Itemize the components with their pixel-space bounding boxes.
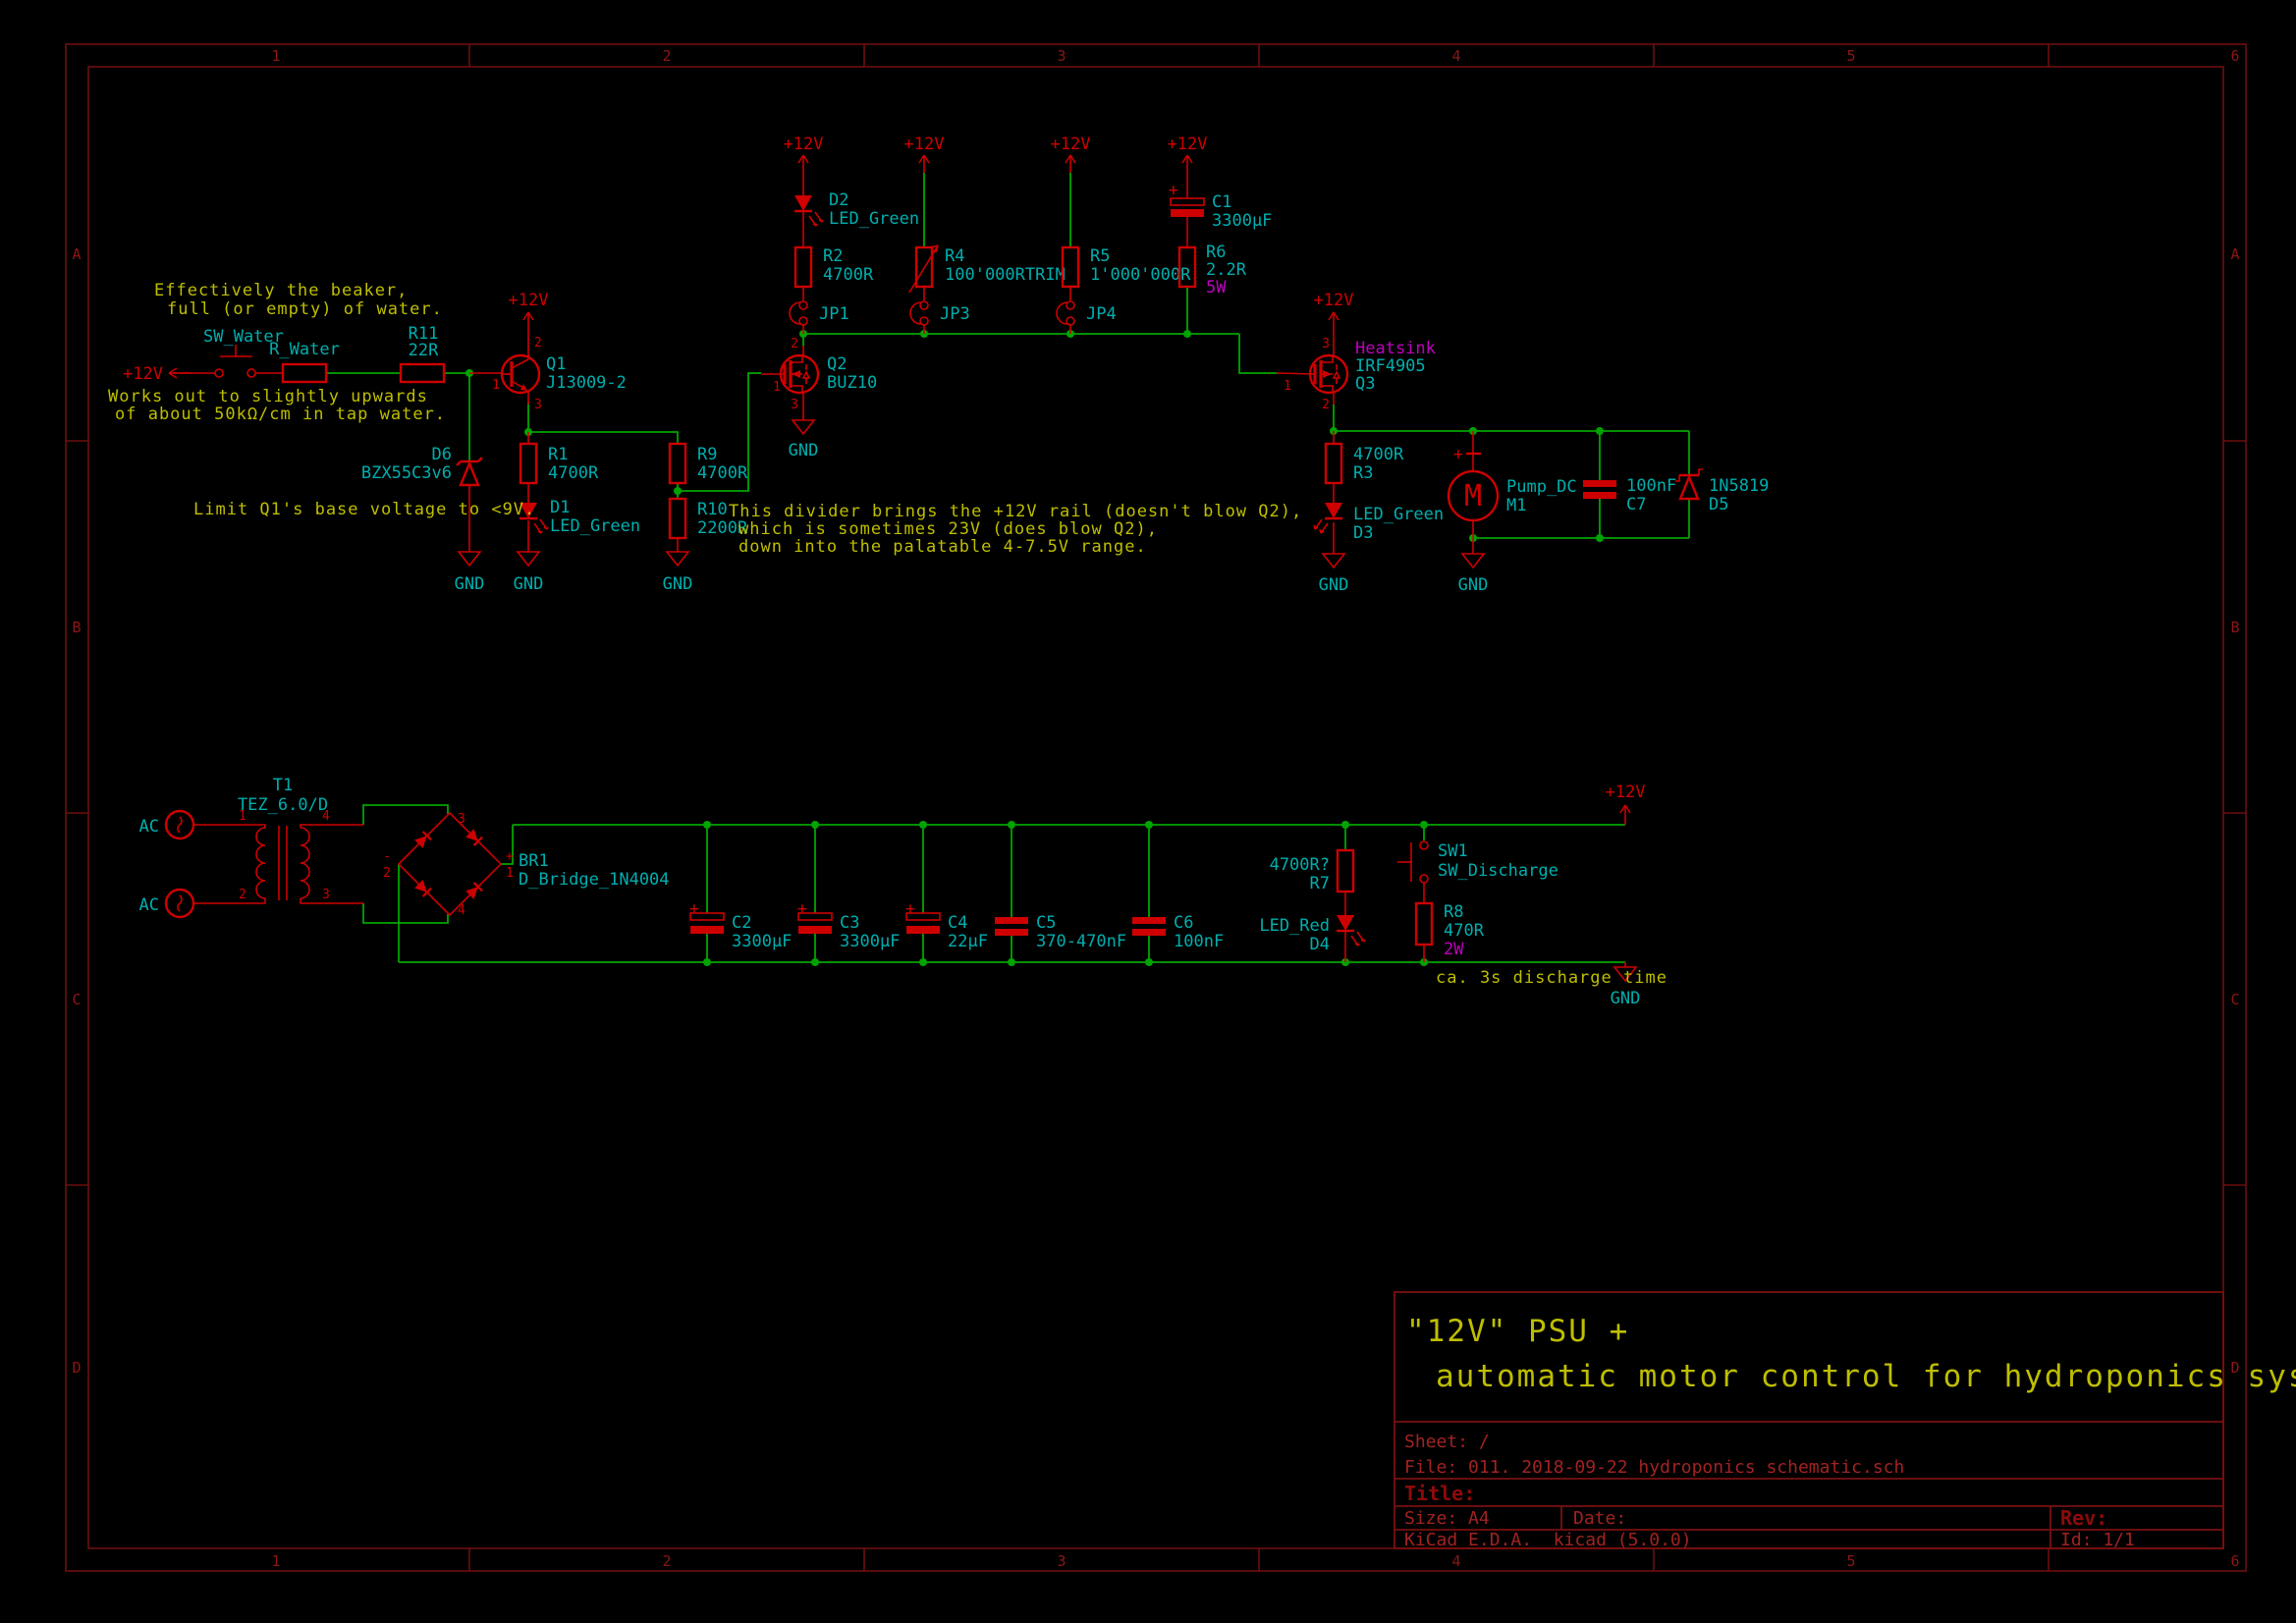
c1-plus: + — [1169, 181, 1178, 200]
comment-beaker-2: full (or empty) of water. — [167, 299, 443, 319]
border-col-3-top: 3 — [1057, 47, 1066, 65]
component-d1[interactable]: D1 LED_Green — [519, 498, 640, 536]
br1-value: D_Bridge_1N4004 — [519, 870, 670, 890]
c7-ref: C7 — [1626, 495, 1646, 514]
sheet-comment-line1: "12V" PSU + — [1406, 1314, 1629, 1349]
d2-ref: D2 — [829, 190, 848, 210]
r3-value: 4700R — [1353, 445, 1404, 464]
d5-value: 1N5819 — [1709, 476, 1769, 496]
r6-power: 5W — [1206, 278, 1227, 298]
border-row-a-right: A — [2230, 245, 2239, 263]
file-field: File: 011. 2018-09-22 hydroponics schema… — [1404, 1457, 1904, 1478]
r3-ref: R3 — [1353, 463, 1373, 483]
component-c4[interactable]: + C4 22µF — [905, 899, 988, 951]
gnd-label: GND — [514, 574, 544, 594]
gnd-label: GND — [1458, 575, 1489, 595]
sheet-comment-line2: automatic motor control for hydroponics … — [1436, 1359, 2296, 1394]
m1-value: Pump_DC — [1506, 477, 1577, 497]
component-c6[interactable]: C6 100nF — [1132, 913, 1224, 951]
component-sw-water[interactable]: SW_Water — [173, 327, 284, 377]
component-r11[interactable]: R11 22R — [401, 324, 444, 382]
c2-ref: C2 — [732, 913, 751, 933]
border-col-3-bottom: 3 — [1057, 1552, 1066, 1570]
sheet-field: Sheet: / — [1404, 1432, 1490, 1452]
q1-pin1: 1 — [492, 378, 500, 393]
border-col-6-top: 6 — [2230, 47, 2239, 65]
p12-label: +12V — [784, 135, 824, 154]
q2-pin1: 1 — [773, 380, 781, 395]
component-c7[interactable]: 100nF C7 — [1583, 476, 1676, 514]
d4-value: LED_Red — [1259, 916, 1330, 936]
r2-ref: R2 — [823, 246, 843, 266]
r1-value: 4700R — [548, 463, 599, 483]
q3-value: IRF4905 — [1355, 356, 1426, 376]
q1-value: J13009-2 — [546, 373, 627, 393]
m1-plus: + — [1453, 445, 1463, 464]
border-col-5-bottom: 5 — [1846, 1552, 1855, 1570]
c4-ref: C4 — [948, 913, 967, 933]
border-col-2-top: 2 — [662, 47, 671, 65]
q3-ref: Q3 — [1355, 374, 1375, 394]
p12-label: +12V — [509, 291, 549, 310]
p12-label: +12V — [1314, 291, 1354, 310]
q3-pin1: 1 — [1284, 379, 1291, 394]
component-jp3[interactable]: JP3 — [910, 301, 970, 334]
br1-minus: - — [383, 849, 391, 864]
r11-value: 22R — [409, 341, 439, 360]
power-12v-d2col: +12V — [784, 135, 824, 173]
component-sw1[interactable]: SW1 SW_Discharge — [1397, 841, 1558, 903]
d2-value: LED_Green — [829, 209, 919, 229]
schematic-comments: Effectively the beaker, full (or empty) … — [108, 281, 1667, 988]
component-c1[interactable]: + C1 3300µF — [1169, 173, 1273, 247]
border-col-4-top: 4 — [1451, 47, 1460, 65]
component-q2[interactable]: Q2 BUZ10 1 2 3 — [761, 337, 877, 412]
power-12v-q1: +12V — [509, 291, 549, 334]
r4-value: 100'000RTRIM — [945, 265, 1066, 285]
component-q1[interactable]: Q1 J13009-2 1 2 3 — [469, 334, 627, 412]
kicad-version: KiCad E.D.A. kicad (5.0.0) — [1404, 1530, 1692, 1550]
component-t1[interactable]: T1 TEZ_6.0/D 1 2 3 4 — [238, 776, 363, 903]
sw1-value: SW_Discharge — [1438, 861, 1558, 881]
border-col-2-bottom: 2 — [662, 1552, 671, 1570]
title-block: "12V" PSU + automatic motor control for … — [1394, 1292, 2296, 1550]
component-r1[interactable]: R1 4700R — [520, 432, 599, 503]
gnd-label: GND — [663, 574, 693, 594]
br1-pin2: 2 — [383, 866, 391, 881]
power-12v-q3: +12V — [1314, 291, 1354, 334]
component-jp4[interactable]: JP4 — [1057, 301, 1117, 334]
component-c3[interactable]: + C3 3300µF — [797, 899, 901, 951]
gnd-label: GND — [1319, 575, 1349, 595]
border-col-1-bottom: 1 — [271, 1552, 280, 1570]
r5-value: 1'000'000R — [1090, 265, 1191, 285]
r6-value: 2.2R — [1206, 260, 1247, 280]
border-row-c-right: C — [2230, 991, 2239, 1008]
comment-beaker-1: Effectively the beaker, — [154, 281, 408, 300]
component-jp1[interactable]: JP1 — [790, 301, 849, 334]
component-r8[interactable]: R8 470R 2W — [1416, 902, 1485, 962]
comment-tapwater-1: Works out to slightly upwards — [108, 387, 428, 406]
component-r5[interactable]: R5 1'000'000R — [1063, 246, 1191, 300]
motor-glyph: M — [1464, 479, 1482, 514]
br1-pin3: 3 — [458, 812, 465, 827]
t1-pin3: 3 — [322, 888, 330, 902]
border-row-d-left: D — [72, 1359, 81, 1377]
power-12v-r5col: +12V — [1051, 135, 1091, 173]
d4-ref: D4 — [1310, 935, 1330, 954]
br1-plus: + — [506, 849, 514, 864]
c3-ref: C3 — [840, 913, 859, 933]
component-br1[interactable]: 3 4 - 2 + 1 BR1 D_Bridge_1N4004 — [383, 812, 669, 918]
component-d6[interactable]: D6 BZX55C3v6 — [361, 445, 482, 485]
component-r-water[interactable]: R_Water — [269, 340, 340, 382]
q1-pin3: 3 — [534, 398, 542, 412]
component-m1[interactable]: + M Pump_DC M1 — [1449, 431, 1577, 538]
border-col-5-top: 5 — [1846, 47, 1855, 65]
date-field: Date: — [1573, 1508, 1626, 1529]
power-gnd-d3: GND — [1319, 522, 1349, 595]
c5-value: 370-470nF — [1036, 932, 1126, 951]
r7-value: 4700R? — [1270, 855, 1330, 875]
power-gnd-r10: GND — [663, 538, 693, 594]
component-r4[interactable]: R4 100'000RTRIM — [909, 245, 1066, 300]
c3-value: 3300µF — [840, 932, 900, 951]
p12-label: +12V — [1051, 135, 1091, 154]
c4-value: 22µF — [948, 932, 988, 951]
r7-ref: R7 — [1310, 874, 1330, 893]
br1-ref: BR1 — [519, 851, 549, 871]
d3-value: LED_Green — [1353, 505, 1444, 524]
r9-ref: R9 — [697, 445, 717, 464]
border-row-b-right: B — [2230, 619, 2239, 636]
d3-ref: D3 — [1353, 523, 1373, 543]
power-12v-r4col: +12V — [904, 135, 945, 173]
r8-power: 2W — [1444, 940, 1464, 959]
border-col-4-bottom: 4 — [1451, 1552, 1460, 1570]
c7-value: 100nF — [1626, 476, 1676, 496]
br1-pin4: 4 — [458, 903, 465, 918]
jp4-ref: JP4 — [1086, 304, 1117, 324]
r1-ref: R1 — [548, 445, 568, 464]
r8-value: 470R — [1444, 921, 1485, 941]
comment-divider-1: This divider brings the +12V rail (doesn… — [729, 502, 1302, 521]
gnd-label: GND — [455, 574, 485, 594]
component-r2[interactable]: R2 4700R — [795, 246, 874, 300]
component-d2[interactable]: D2 LED_Green — [794, 173, 919, 247]
component-q3[interactable]: Heatsink IRF4905 Q3 1 3 2 — [1277, 334, 1436, 412]
p12-label: +12V — [904, 135, 945, 154]
c5-ref: C5 — [1036, 913, 1056, 933]
c1-ref: C1 — [1212, 192, 1231, 212]
sw1-ref: SW1 — [1438, 841, 1468, 861]
q3-note: Heatsink — [1355, 339, 1436, 358]
power-12v-c1col: +12V — [1168, 135, 1208, 173]
size-field: Size: A4 — [1404, 1508, 1490, 1529]
comment-discharge: ca. 3s discharge time — [1436, 968, 1667, 988]
d6-ref: D6 — [432, 445, 452, 464]
border-col-6-bottom: 6 — [2230, 1552, 2239, 1570]
border-col-1-top: 1 — [271, 47, 280, 65]
component-r3[interactable]: 4700R R3 — [1326, 431, 1404, 503]
title-field-label: Title: — [1404, 1482, 1475, 1505]
d1-ref: D1 — [550, 498, 570, 517]
rev-field-label: Rev: — [2060, 1506, 2107, 1530]
p12-label: +12V — [1168, 135, 1208, 154]
power-gnd-m1: GND — [1458, 538, 1489, 595]
component-r9[interactable]: R9 4700R — [670, 444, 748, 483]
t1-pin1: 1 — [239, 809, 246, 824]
t1-value: TEZ_6.0/D — [238, 795, 328, 815]
sheet-id: Id: 1/1 — [2060, 1530, 2135, 1550]
r8-ref: R8 — [1444, 902, 1463, 922]
power-12v-psu: +12V — [1606, 783, 1646, 825]
d6-value: BZX55C3v6 — [361, 463, 452, 483]
t1-ref: T1 — [273, 776, 293, 795]
ac-label: AC — [139, 817, 159, 837]
m1-ref: M1 — [1506, 496, 1526, 515]
q1-pin2: 2 — [534, 336, 542, 351]
jp3-ref: JP3 — [940, 304, 970, 324]
p12-label: +12V — [123, 364, 163, 384]
border-row-c-left: C — [72, 991, 81, 1008]
q2-pin2: 2 — [791, 337, 798, 352]
d1-value: LED_Green — [550, 516, 640, 536]
gnd-label: GND — [789, 441, 819, 460]
c1-value: 3300µF — [1212, 211, 1272, 231]
comment-divider-2: which is sometimes 23V (does blow Q2), — [738, 519, 1158, 539]
q3-pin2: 2 — [1322, 398, 1330, 412]
p12-label: +12V — [1606, 783, 1646, 802]
q3-pin3: 3 — [1322, 337, 1330, 352]
comment-tapwater-2: of about 50kΩ/cm in tap water. — [115, 405, 446, 424]
comment-limit: Limit Q1's base voltage to <9V. — [193, 500, 535, 519]
q2-ref: Q2 — [827, 354, 847, 374]
gnd-label: GND — [1611, 989, 1641, 1008]
power-12v-left: +12V — [123, 364, 192, 384]
q2-pin3: 3 — [791, 398, 798, 412]
schematic-canvas[interactable]: 1 2 3 4 5 6 1 2 3 4 5 6 A B C D A B C D … — [0, 0, 2296, 1623]
component-c2[interactable]: + C2 3300µF — [689, 899, 793, 951]
c6-value: 100nF — [1174, 932, 1224, 951]
r10-ref: R10 — [697, 500, 728, 519]
c6-ref: C6 — [1174, 913, 1193, 933]
component-r7[interactable]: 4700R? R7 — [1270, 850, 1353, 915]
q1-ref: Q1 — [546, 354, 566, 374]
comment-divider-3: down into the palatable 4-7.5V range. — [738, 537, 1147, 557]
t1-pin2: 2 — [239, 888, 246, 902]
d5-ref: D5 — [1709, 495, 1728, 514]
r6-ref: R6 — [1206, 243, 1226, 262]
r2-value: 4700R — [823, 265, 874, 285]
r-water-ref: R_Water — [269, 340, 340, 359]
r4-ref: R4 — [945, 246, 964, 266]
br1-pin1: 1 — [506, 866, 514, 881]
q2-value: BUZ10 — [827, 373, 877, 393]
jp1-ref: JP1 — [819, 304, 849, 324]
r9-value: 4700R — [697, 463, 748, 483]
border-row-b-left: B — [72, 619, 81, 636]
component-d4[interactable]: LED_Red D4 — [1259, 915, 1365, 962]
t1-pin4: 4 — [322, 809, 330, 824]
r5-ref: R5 — [1090, 246, 1110, 266]
ac-label: AC — [139, 895, 159, 915]
c2-value: 3300µF — [732, 932, 792, 951]
component-c5[interactable]: C5 370-470nF — [995, 913, 1126, 951]
border-row-a-left: A — [72, 245, 81, 263]
